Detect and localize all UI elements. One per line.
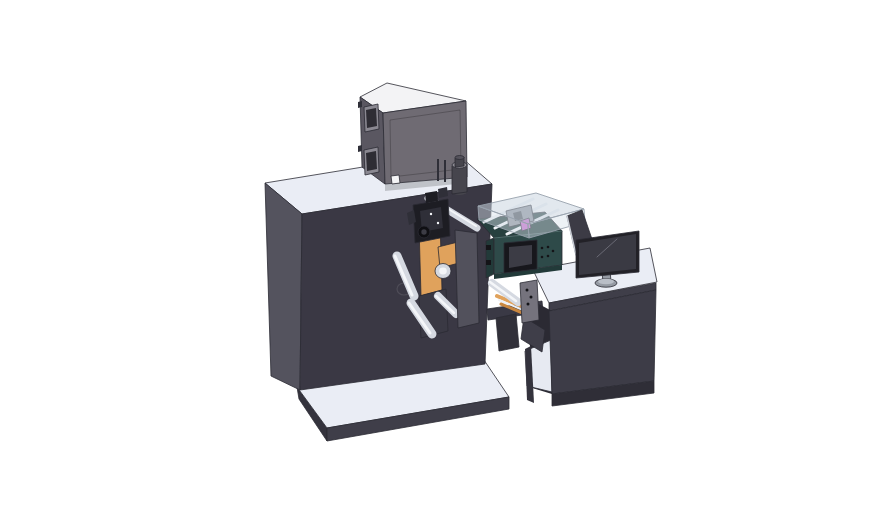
- arm-holed-plate: [520, 280, 539, 323]
- box-window-glass-lower: [366, 151, 377, 171]
- electrical-control-box: [358, 83, 467, 191]
- touchscreen-display: [509, 245, 532, 268]
- print-head-wheel-hub: [421, 229, 426, 234]
- panel-button-2: [547, 246, 550, 249]
- monitor-base-top: [598, 279, 614, 285]
- plate-hole-3: [527, 303, 530, 306]
- print-head-bolt-2: [437, 222, 439, 224]
- cylinder-top: [455, 156, 464, 160]
- machine-render: [0, 0, 888, 522]
- panel-button-3: [552, 250, 555, 253]
- box-corner-sticker: [391, 175, 400, 184]
- cabinet-side-panel: [265, 183, 302, 390]
- print-head-bolt-1: [430, 213, 432, 215]
- panel-button-5: [547, 255, 550, 258]
- panel-button-1: [541, 247, 544, 250]
- arm-support: [496, 314, 519, 351]
- process-unit-side: [486, 238, 494, 278]
- box-vent-slit-2: [444, 160, 446, 182]
- plate-hole-1: [526, 289, 529, 292]
- print-head-upper-block: [425, 191, 438, 203]
- box-hinge-lower: [358, 145, 362, 152]
- box-vent-slit-1: [437, 159, 439, 181]
- box-hinge-upper: [358, 101, 362, 108]
- box-window-glass-upper: [366, 108, 377, 128]
- plate-hole-2: [530, 296, 533, 299]
- cad-render-canvas: [0, 0, 888, 522]
- side-connector-2: [486, 260, 491, 265]
- roller-end-hub: [439, 268, 447, 275]
- side-connector-1: [486, 245, 491, 250]
- front-cover-plate: [455, 230, 479, 328]
- panel-button-4: [541, 256, 544, 259]
